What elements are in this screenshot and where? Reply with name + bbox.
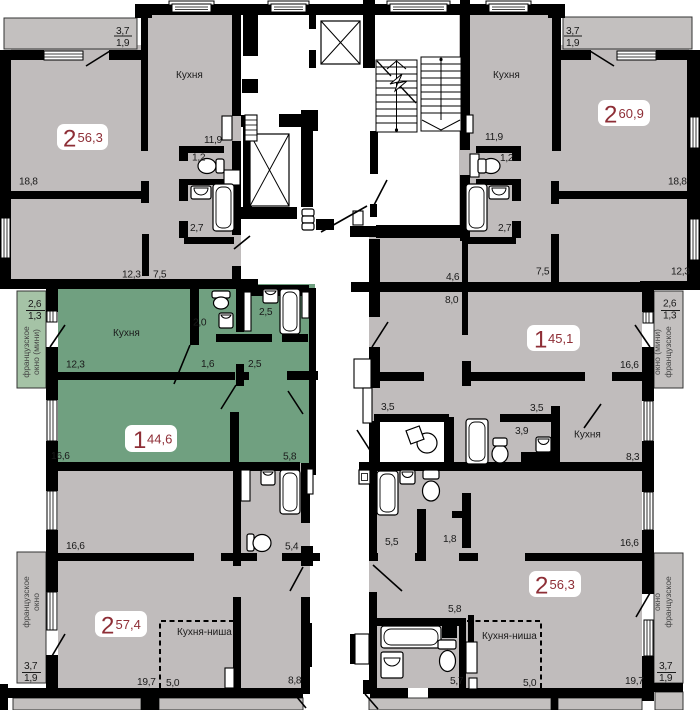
svg-text:45,1: 45,1 (548, 331, 573, 346)
svg-text:2,7: 2,7 (498, 223, 512, 234)
svg-text:2,5: 2,5 (259, 307, 273, 318)
svg-text:1,9: 1,9 (659, 673, 673, 684)
svg-text:1,6: 1,6 (201, 359, 215, 370)
svg-text:окно (мини): окно (мини) (31, 329, 41, 375)
svg-text:12,3: 12,3 (122, 270, 141, 281)
svg-text:57,4: 57,4 (116, 617, 141, 632)
svg-text:8,0: 8,0 (445, 295, 459, 306)
svg-text:44,6: 44,6 (147, 432, 172, 447)
svg-text:12,3: 12,3 (671, 267, 690, 278)
svg-text:2,6: 2,6 (663, 299, 677, 310)
svg-text:окно (мини): окно (мини) (652, 329, 662, 375)
svg-text:1,9: 1,9 (566, 38, 580, 49)
svg-text:7,5: 7,5 (536, 267, 550, 278)
svg-text:1: 1 (534, 327, 547, 354)
svg-text:французское: французское (21, 326, 31, 378)
svg-text:2: 2 (63, 126, 76, 153)
svg-text:16,6: 16,6 (620, 538, 639, 549)
svg-text:1,2: 1,2 (192, 153, 206, 164)
svg-text:1,9: 1,9 (24, 673, 38, 684)
svg-text:3,7: 3,7 (116, 26, 130, 37)
svg-text:французское: французское (21, 576, 31, 628)
svg-text:19,7: 19,7 (625, 676, 644, 687)
svg-text:2,0: 2,0 (193, 318, 207, 329)
svg-text:1,2: 1,2 (500, 153, 514, 164)
svg-text:1,3: 1,3 (663, 311, 677, 322)
svg-text:2,7: 2,7 (190, 223, 204, 234)
svg-text:3,7: 3,7 (24, 661, 38, 672)
svg-text:окно: окно (652, 593, 662, 611)
svg-text:Кухня: Кухня (113, 328, 140, 339)
svg-text:7,5: 7,5 (153, 270, 167, 281)
svg-text:56,3: 56,3 (550, 577, 575, 592)
svg-text:60,9: 60,9 (619, 106, 644, 121)
svg-text:2: 2 (604, 102, 617, 129)
svg-text:1: 1 (133, 427, 146, 454)
svg-text:5,5: 5,5 (385, 537, 399, 548)
svg-text:8,8: 8,8 (288, 676, 302, 687)
svg-text:5,0: 5,0 (166, 678, 180, 689)
svg-text:Кухня: Кухня (493, 70, 520, 81)
svg-text:11,9: 11,9 (204, 135, 223, 146)
svg-text:5,8: 5,8 (283, 452, 297, 463)
svg-text:2: 2 (535, 573, 548, 600)
svg-text:5,0: 5,0 (523, 678, 537, 689)
svg-text:16,6: 16,6 (66, 541, 85, 552)
svg-text:19,7: 19,7 (137, 677, 156, 688)
svg-text:5,4: 5,4 (285, 542, 299, 553)
svg-text:2,6: 2,6 (28, 299, 42, 310)
svg-text:1,8: 1,8 (443, 534, 457, 545)
svg-text:4,6: 4,6 (446, 272, 460, 283)
svg-text:5,8: 5,8 (448, 604, 462, 615)
svg-text:Кухня: Кухня (176, 70, 203, 81)
svg-text:3,7: 3,7 (566, 26, 580, 37)
svg-text:2,5: 2,5 (248, 359, 262, 370)
svg-text:11,9: 11,9 (485, 132, 504, 143)
svg-text:окно: окно (31, 593, 41, 611)
svg-text:12,3: 12,3 (66, 360, 85, 371)
svg-text:56,3: 56,3 (78, 130, 103, 145)
svg-text:5,7: 5,7 (450, 676, 464, 687)
svg-text:3,7: 3,7 (659, 661, 673, 672)
svg-text:французское: французское (663, 326, 673, 378)
svg-text:3,9: 3,9 (515, 426, 529, 437)
svg-text:2: 2 (101, 613, 114, 640)
svg-text:3,5: 3,5 (530, 403, 544, 414)
svg-text:Кухня-ниша: Кухня-ниша (177, 627, 232, 638)
svg-text:французское: французское (663, 576, 673, 628)
svg-text:3,5: 3,5 (381, 402, 395, 413)
svg-text:Кухня-ниша: Кухня-ниша (482, 631, 537, 642)
svg-text:1,9: 1,9 (116, 38, 130, 49)
svg-text:16,6: 16,6 (51, 451, 70, 462)
svg-text:1,3: 1,3 (28, 311, 42, 322)
svg-text:18,8: 18,8 (19, 177, 38, 188)
svg-text:18,8: 18,8 (668, 177, 687, 188)
svg-text:8,3: 8,3 (626, 452, 640, 463)
svg-text:16,6: 16,6 (620, 360, 639, 371)
svg-text:Кухня: Кухня (574, 430, 601, 441)
